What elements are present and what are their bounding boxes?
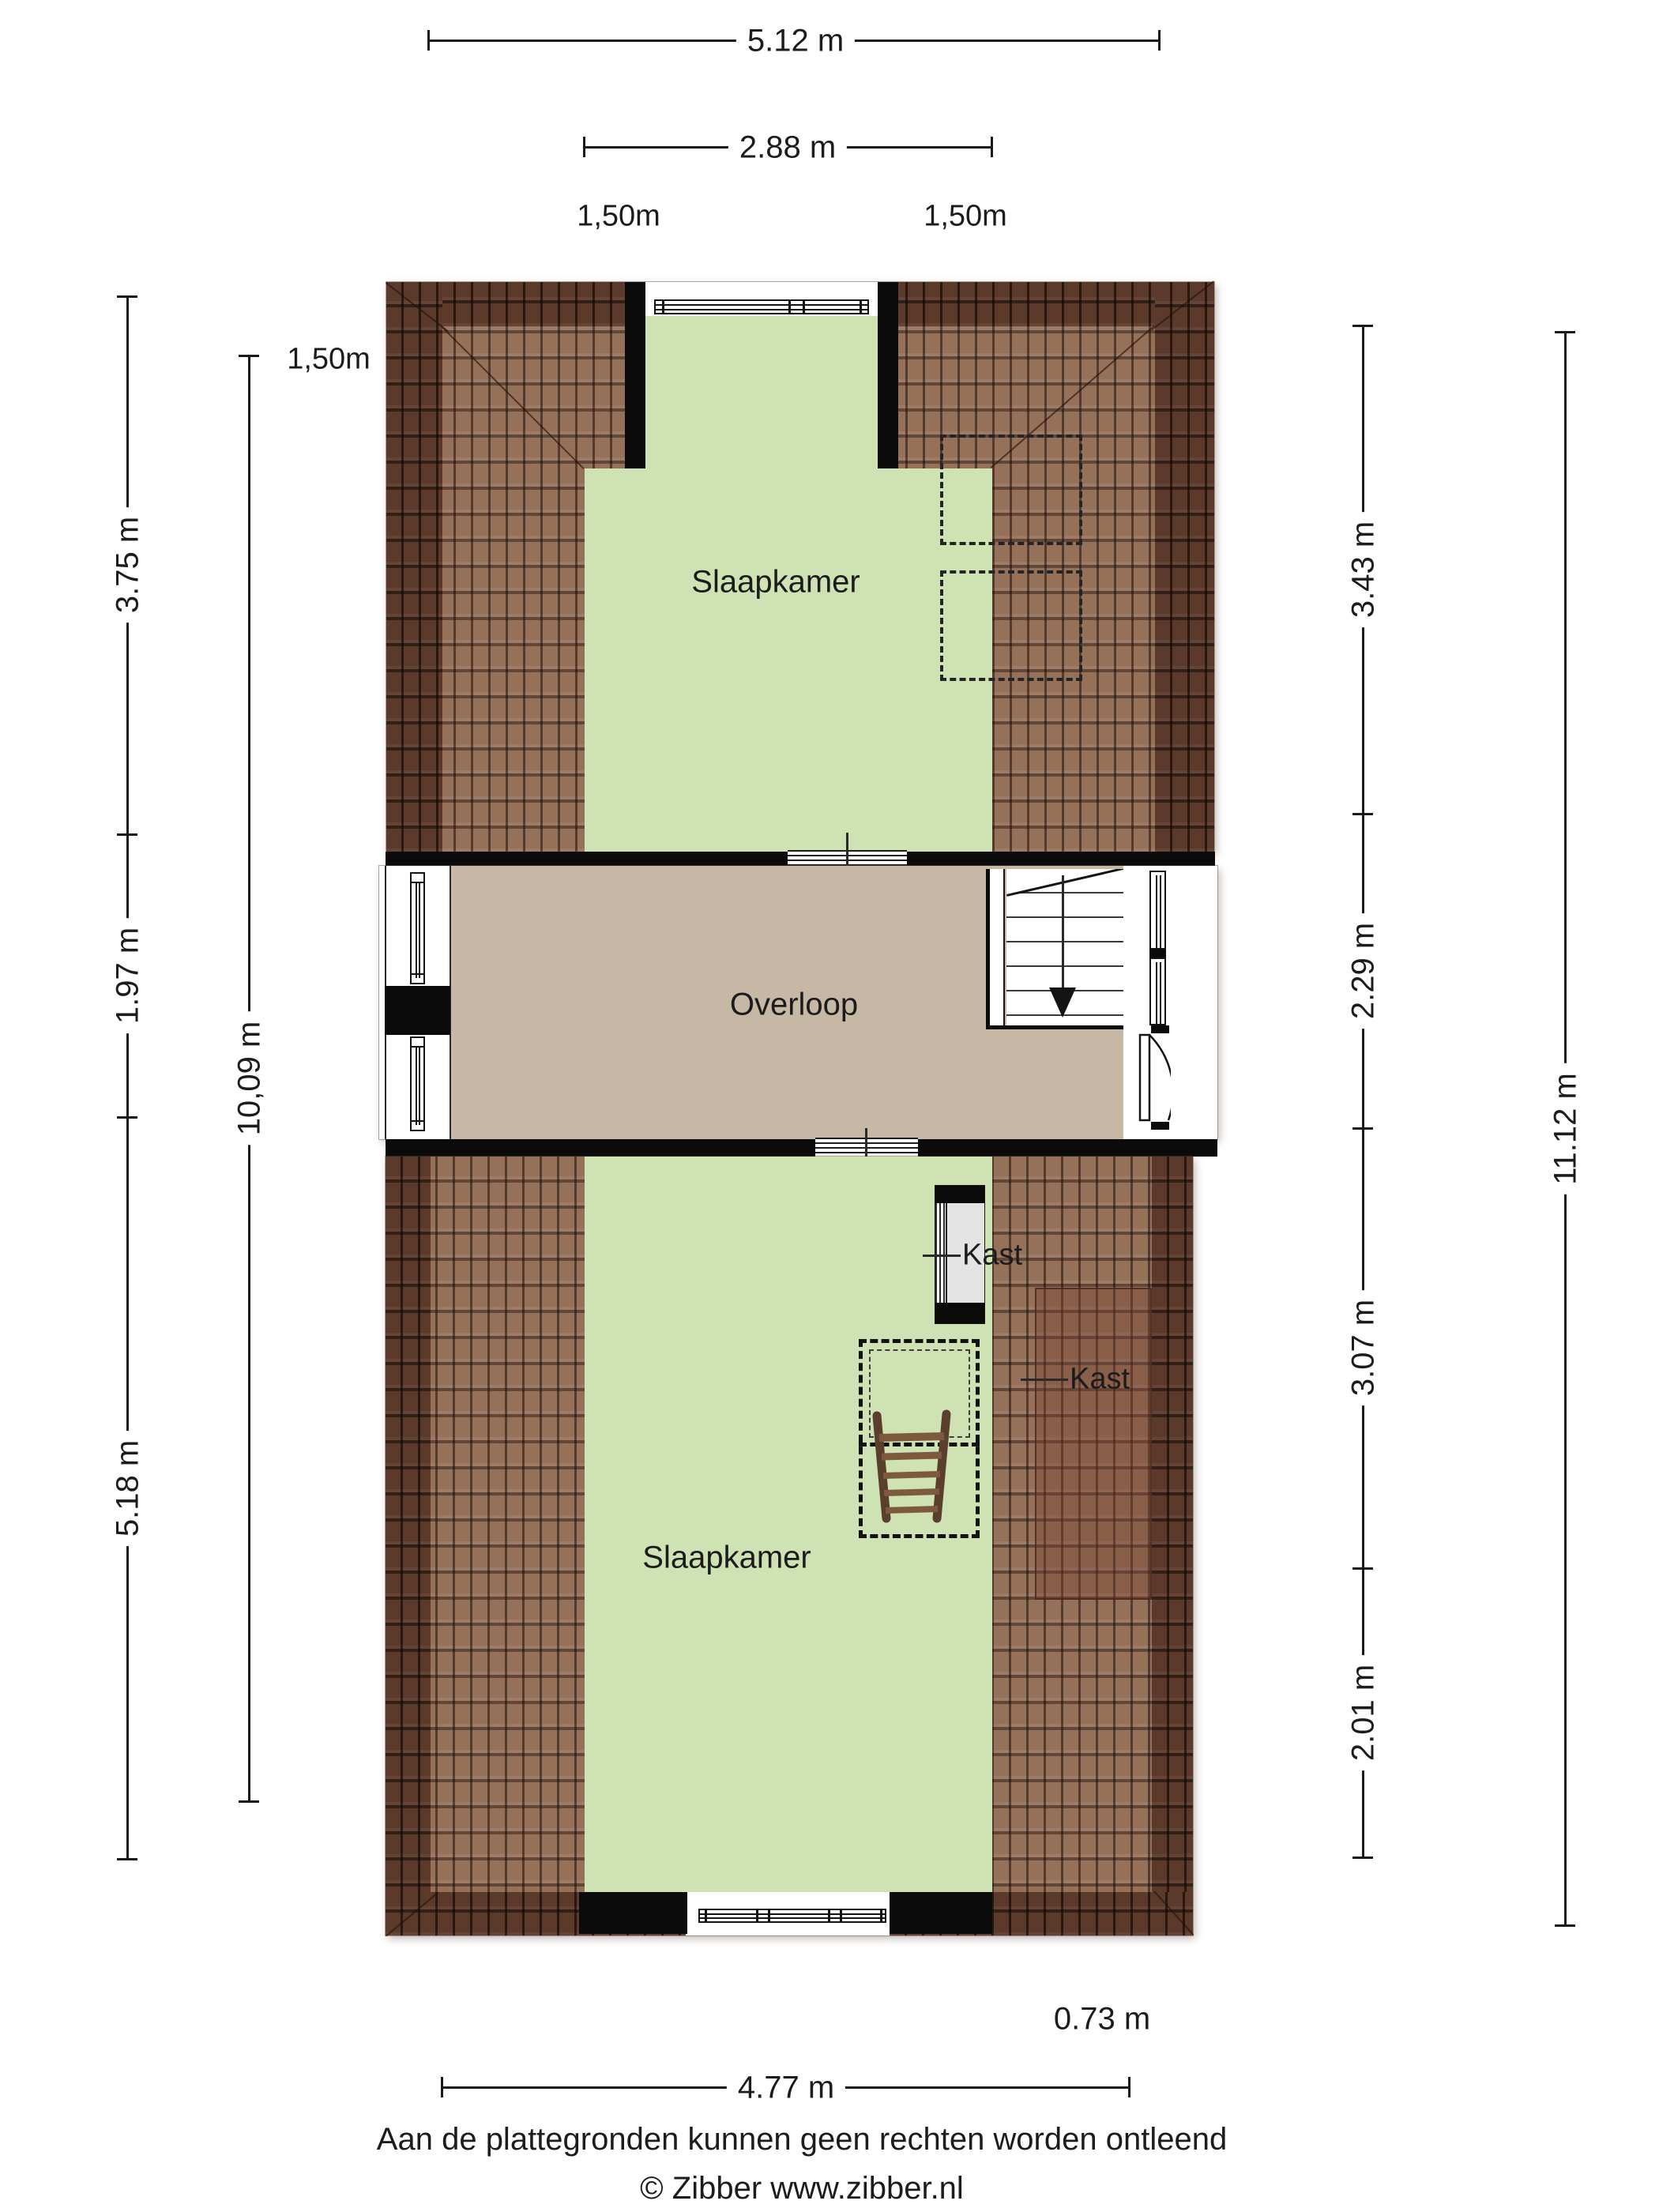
contour-label-top-right: 1,50m xyxy=(924,200,1007,234)
footer-disclaimer: Aan de plattegronden kunnen geen rechten… xyxy=(377,2122,1227,2157)
window-pane-line xyxy=(656,309,867,310)
closet-inner-leader-line xyxy=(923,1255,961,1257)
dim-tick xyxy=(441,2077,443,2097)
room-bedroom-top xyxy=(585,468,992,852)
roof-eave-band-right-top xyxy=(1155,282,1214,852)
dim-tick xyxy=(1158,30,1161,51)
stairs-down-arrow-icon xyxy=(1049,987,1076,1018)
window-pane-line xyxy=(656,304,867,306)
window-pane-line xyxy=(419,882,420,978)
room-bedroom-top-dormer xyxy=(645,316,878,469)
landing-window-left-2 xyxy=(410,1036,425,1131)
room-label-bedroom-top: Slaapkamer xyxy=(691,565,860,600)
room-label-landing: Overloop xyxy=(730,987,858,1023)
landing-window-right-2 xyxy=(1149,957,1166,1025)
dim-tick xyxy=(427,30,430,51)
window-pane-line xyxy=(416,882,417,978)
window-divider xyxy=(1149,950,1166,957)
window-mullion xyxy=(756,1910,758,1921)
dim-label-bottom: 4.77 m xyxy=(727,2071,845,2106)
wall-landing-bedroombottom xyxy=(386,1139,1217,1157)
window-end-cap xyxy=(412,973,423,975)
dim-tick xyxy=(991,137,993,157)
window-pane-line xyxy=(416,1046,417,1125)
bottom-window xyxy=(698,1909,886,1923)
contour-label-top-left: 1,50m xyxy=(577,200,660,234)
dim-label-top-inner: 2.88 m xyxy=(728,130,847,166)
dim-tick xyxy=(1555,331,1575,333)
wall-bottom-left xyxy=(579,1892,687,1934)
dim-tick xyxy=(1128,2077,1130,2097)
roof-eave-band-right-bottom xyxy=(1152,1157,1193,1935)
dim-tick xyxy=(583,137,585,157)
staircase xyxy=(986,869,1123,1029)
window-end-cap xyxy=(412,1046,423,1048)
dim-tick xyxy=(239,355,259,357)
closet-wall-top xyxy=(935,1186,984,1203)
wall-bottom-right xyxy=(890,1892,992,1934)
dim-label-closet-depth: 0.73 m xyxy=(1054,2002,1150,2037)
stair-handrail xyxy=(990,869,1005,1025)
dim-label-top-outer: 5.12 m xyxy=(736,24,855,59)
roof-eave-band-left-bottom xyxy=(386,1157,431,1935)
skylight-outline-lower xyxy=(940,570,1082,681)
dim-tick xyxy=(1352,813,1373,815)
window-mullion xyxy=(768,1910,770,1921)
window-mullion xyxy=(803,301,805,313)
window-end-cap xyxy=(412,882,423,883)
window-end-cap xyxy=(880,1910,882,1921)
dim-tick xyxy=(1555,1924,1575,1927)
dim-label-left-2: 1.97 m xyxy=(109,918,148,1033)
dim-label-right-outer: 11.12 m xyxy=(1547,1063,1586,1194)
landing-door xyxy=(1138,1025,1171,1130)
window-pane-line xyxy=(1160,962,1161,1024)
window-pane-line xyxy=(700,1913,885,1915)
contour-label-left: 1,50m xyxy=(287,343,371,377)
dim-tick xyxy=(117,833,137,836)
closet-roof-leader-line xyxy=(1021,1379,1068,1381)
dormer-stub-wall-left xyxy=(625,282,645,468)
window-end-cap xyxy=(705,1910,707,1921)
chimney-block xyxy=(385,986,450,1035)
landing-window-left-1 xyxy=(410,872,425,984)
footer-copyright: © Zibber www.zibber.nl xyxy=(640,2171,964,2206)
dim-label-left-3: 5.18 m xyxy=(109,1431,148,1546)
window-end-cap xyxy=(662,301,664,313)
window-pane-line xyxy=(1156,875,1157,948)
landing-window-right-1 xyxy=(1149,871,1166,950)
dim-tick xyxy=(1352,1567,1373,1570)
dormer-stub-wall-right xyxy=(878,282,898,468)
closet-wall-bottom xyxy=(935,1303,984,1323)
room-label-closet-inner: Kast xyxy=(962,1239,1022,1273)
dim-label-right-3: 3.07 m xyxy=(1345,1290,1383,1405)
roof-eave-band-left-top xyxy=(386,282,442,852)
stair-treads xyxy=(1006,869,1123,1025)
dim-tick xyxy=(1352,325,1373,327)
window-pane-line xyxy=(1160,875,1161,948)
dim-tick xyxy=(239,1800,259,1803)
window-pane-line xyxy=(700,1917,885,1919)
room-label-bedroom-bottom: Slaapkamer xyxy=(642,1540,811,1576)
dim-label-left-inner: 10,09 m xyxy=(231,1012,269,1145)
dim-tick xyxy=(117,1116,137,1119)
dim-tick xyxy=(117,1858,137,1860)
window-mullion xyxy=(828,1910,830,1921)
dim-label-right-2: 2.29 m xyxy=(1345,913,1383,1029)
window-end-cap xyxy=(412,1120,423,1122)
window-mullion xyxy=(840,1910,842,1921)
dormer-window xyxy=(654,299,869,314)
dim-tick xyxy=(1352,1127,1373,1130)
stair-direction-line xyxy=(1062,875,1064,987)
ladder xyxy=(863,1406,960,1525)
window-end-cap xyxy=(860,301,862,313)
dim-label-left-1: 3.75 m xyxy=(109,507,148,623)
window-pane-line xyxy=(1156,962,1157,1024)
closet-roof-overlay xyxy=(1035,1288,1152,1600)
window-pane-line xyxy=(419,1046,420,1125)
dim-label-right-4: 2.01 m xyxy=(1345,1655,1383,1770)
closet-sliding-door xyxy=(935,1203,947,1303)
stair-wall-bottom xyxy=(986,1025,1123,1029)
dim-tick xyxy=(1352,1856,1373,1859)
dim-tick xyxy=(117,295,137,298)
dim-label-right-1: 3.43 m xyxy=(1345,512,1383,627)
room-label-closet-roof: Kast xyxy=(1070,1363,1130,1397)
window-mullion xyxy=(788,301,791,313)
floorplan-canvas: Slaapkamer xyxy=(0,0,1659,2212)
skylight-outline-upper xyxy=(940,434,1082,545)
